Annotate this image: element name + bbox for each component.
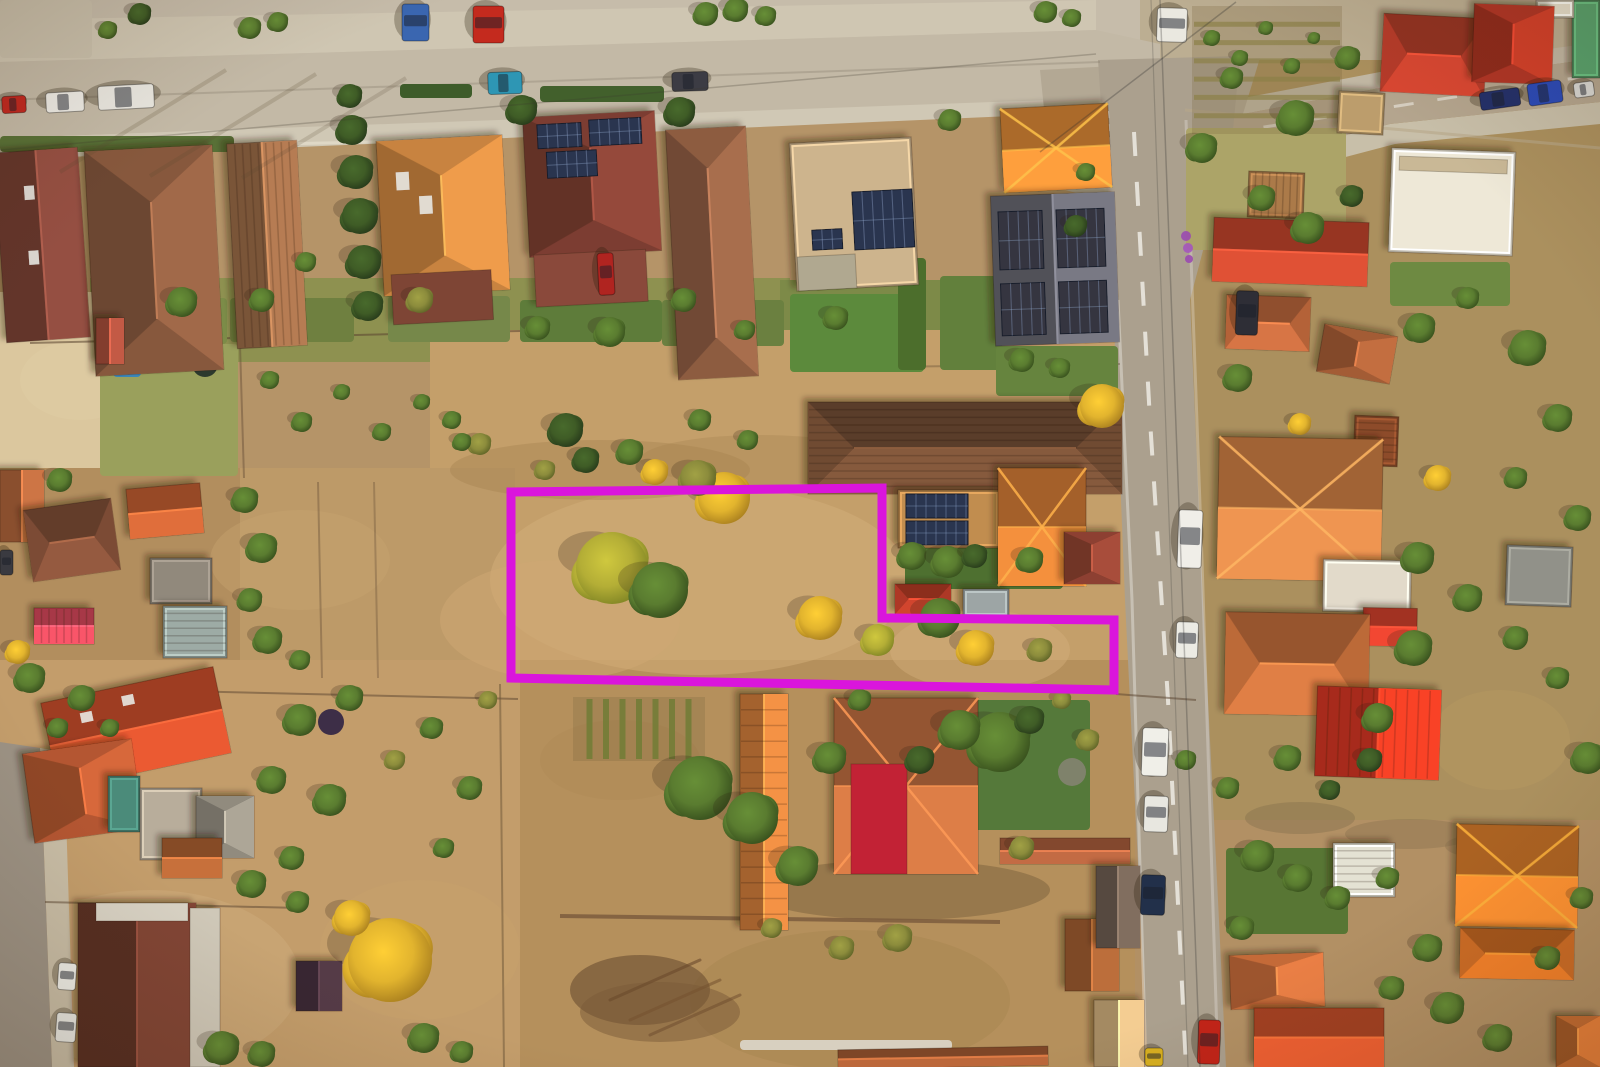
aerial-photo-residential-area bbox=[0, 0, 1600, 1067]
photo-vignette bbox=[0, 0, 1600, 1067]
scene-canvas bbox=[0, 0, 1600, 1067]
